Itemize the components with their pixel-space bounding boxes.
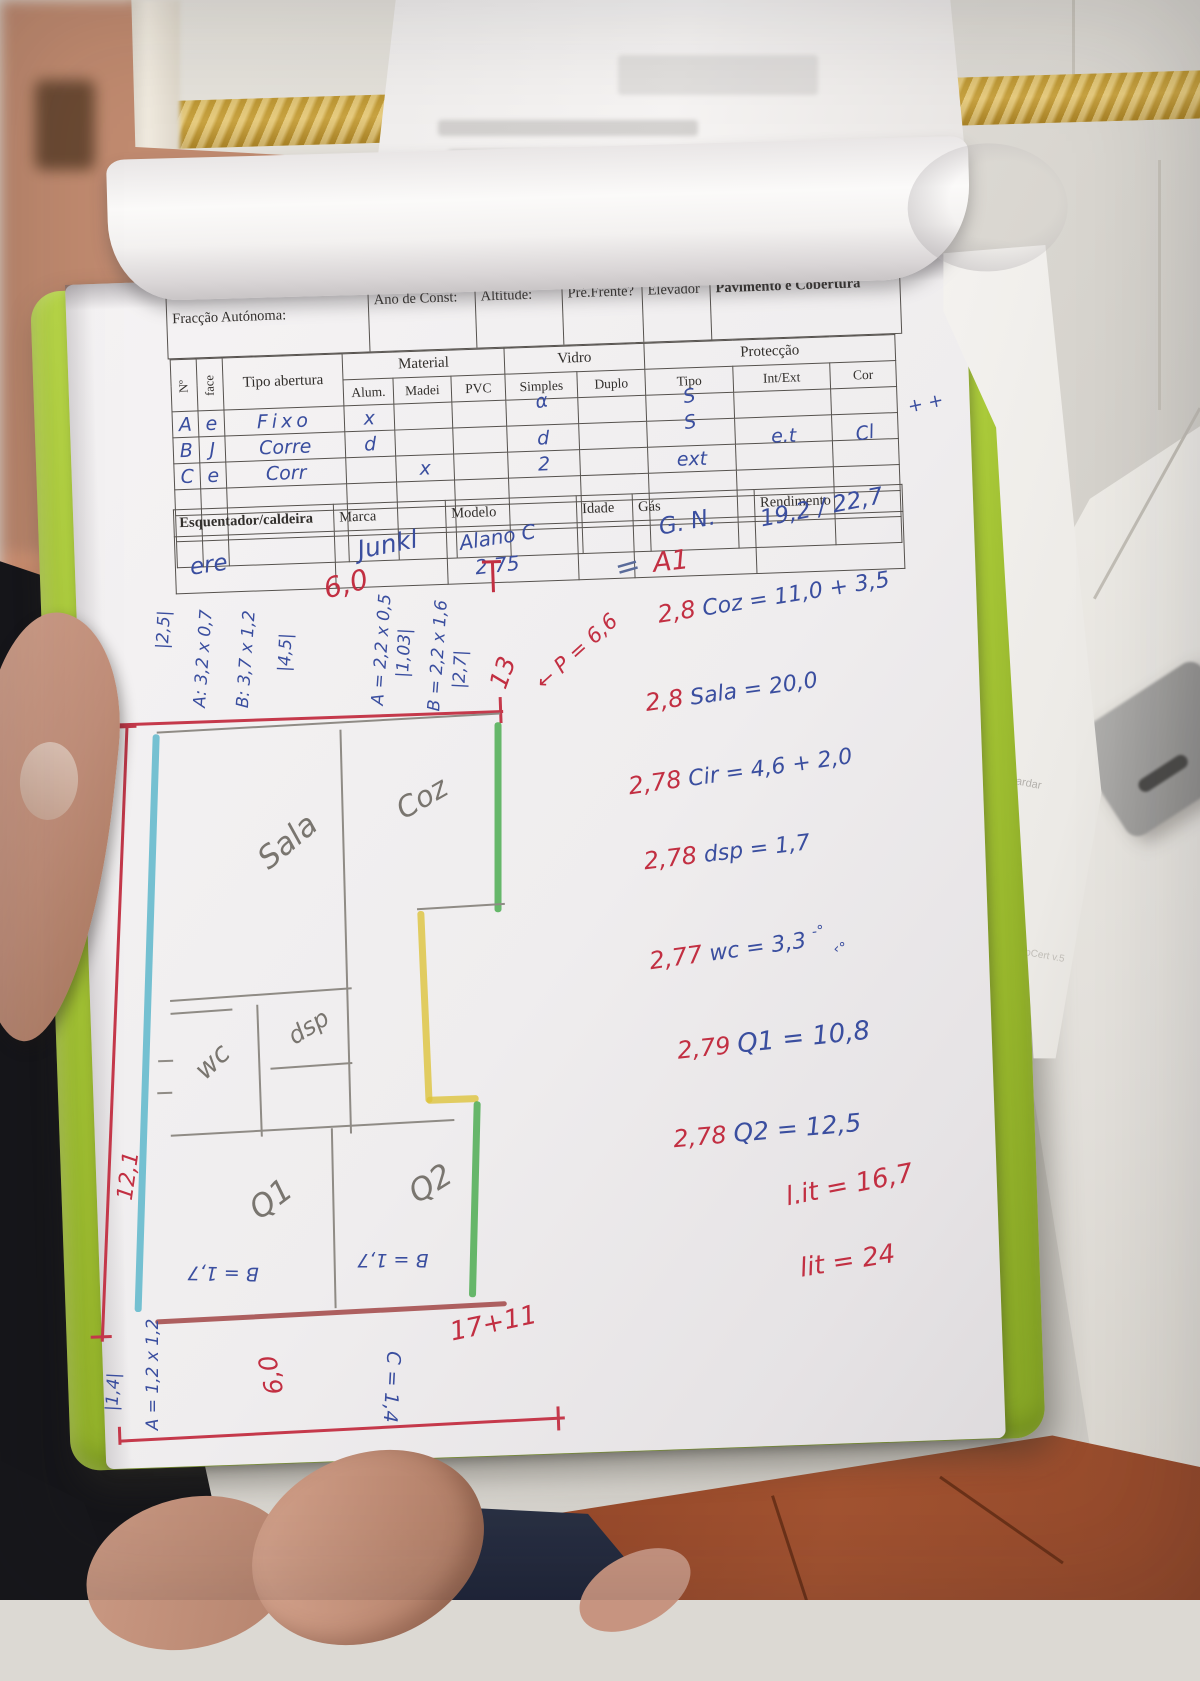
measure-25: |2,5| (153, 610, 175, 649)
col-madei: Madei (393, 376, 452, 404)
calc-coef: 2,78 (672, 1121, 728, 1154)
plan-window-tick (158, 1060, 173, 1062)
measure-p66-text: P = 6,6 (549, 609, 622, 678)
col-int-ext: Int/Ext (733, 363, 831, 392)
bottom-measure-tick-right (556, 1406, 559, 1430)
field-altitude: Altitude: (475, 283, 564, 348)
calc-line: 2,79 Q1 = 10,8 (676, 1016, 872, 1066)
heater-esq-value: ere (188, 550, 229, 581)
rolled-page (106, 136, 972, 302)
form-paper: Bacah Olesup Fracção Autónoma: Ano de Co… (65, 254, 1006, 1470)
room-label-sala: Sala (251, 806, 325, 876)
bottom-a: A = 1,2 x 1,2 (143, 1319, 163, 1431)
floor-plan: Sala Coz wc dsp Q1 Q2 (110, 707, 556, 1481)
plan-top-tick-right (499, 697, 502, 723)
margin-note: + + (906, 390, 945, 418)
room-label-dsp: dsp (283, 1004, 334, 1051)
plan-wall-yellow-h (427, 1095, 479, 1104)
calc-small-mark: -° (811, 923, 825, 941)
plan-wall-green-upper (495, 722, 502, 912)
plan-dsp-bottom (270, 1062, 352, 1070)
room-label-coz: Coz (390, 770, 453, 826)
col-idade: Idade (576, 494, 633, 523)
measure-b37: B: 3,7 x 1,2 (233, 610, 260, 709)
plan-wc-top2 (170, 1009, 232, 1015)
floor-grout (939, 1476, 1064, 1564)
room-label-q1: Q1 (243, 1172, 300, 1227)
calc-expr: Sala = 20,0 (689, 668, 820, 711)
bottom-c: C = 1,4 (379, 1351, 405, 1424)
plan-divider-sala-coz (339, 730, 352, 1134)
plan-wall-yellow-v (417, 911, 432, 1103)
plan-window-tick (157, 1092, 172, 1094)
field-pre-frente: Pré.Frente? (562, 280, 644, 345)
calc-coef: 2,8 (643, 684, 685, 717)
shelf-object (35, 80, 95, 170)
field-elevador: Elevador (642, 277, 712, 341)
plan-wc-top (170, 987, 352, 1002)
sheet-showthrough (618, 55, 818, 95)
col-num: Nº (170, 359, 198, 412)
tile-grout-line (1158, 160, 1161, 410)
room-label-wc: wc (189, 1038, 237, 1086)
bottom-b1: B = 1,7 (187, 1261, 259, 1284)
plan-divider-q1-q2 (331, 1128, 337, 1308)
bottom-b2: B = 1,7 (357, 1249, 428, 1271)
plan-wc-right (256, 1005, 263, 1137)
lit-line-2: lit = 24 (798, 1239, 898, 1284)
plan-wall-green-lower (469, 1101, 481, 1297)
measure-p66-red: ← P = 6,6 (531, 609, 622, 695)
col-face: face (196, 358, 224, 411)
field-ano: Ano de Const: (368, 286, 477, 352)
a1-label: A1 (651, 544, 690, 579)
calc-line: 2,77 wc = 3,3 -° ‹° (648, 920, 847, 975)
calc-line: 2,78 Q2 = 12,5 (672, 1108, 862, 1153)
room-label-q2: Q2 (402, 1157, 458, 1211)
col-tipo-abertura: Tipo abertura (222, 354, 344, 410)
floor-grout (771, 1495, 808, 1601)
label-fraccao: Fracção Autónoma: (172, 307, 286, 327)
lit-line-1: l.it = 16,7 (783, 1158, 915, 1212)
measure-b22: B = 2,2 x 1,6 (424, 599, 452, 712)
calc-coef: 2,78 (642, 841, 698, 875)
calc-expr: Q1 = 10,8 (736, 1016, 872, 1060)
col-marca: Marca (333, 500, 446, 531)
col-duplo: Duplo (577, 369, 646, 397)
plan-wall-step (417, 903, 505, 910)
measure-a22: A = 2,2 x 0,5 (368, 593, 396, 706)
col-pvc: PVC (451, 374, 506, 402)
measure-45: |4,5| (275, 633, 297, 672)
plan-corridor-line (171, 1119, 455, 1137)
calc-coef: 2,8 (656, 595, 698, 629)
plan-wall-blue (135, 734, 160, 1312)
calc-line: 2,8 Sala = 20,0 (643, 665, 819, 717)
calc-line: 2,78 dsp = 1,7 (642, 827, 811, 875)
measure-13-red: 13 (484, 653, 522, 693)
bottom-tick-14: |1,4| (102, 1372, 124, 1411)
calc-expr: dsp = 1,7 (702, 830, 811, 868)
calc-line: 2,78 Cir = 4,6 + 2,0 (627, 741, 854, 800)
measure-a32: A: 3,2 x 0,7 (190, 609, 217, 708)
calc-coef: 2,77 (648, 940, 705, 975)
col-alum: Alum. (343, 378, 394, 406)
calc-expr: Q2 = 12,5 (732, 1108, 862, 1148)
calc-expr: wc = 3,3 (708, 928, 808, 966)
field-fraccao: Fracção Autónoma: (166, 289, 370, 358)
sheet-showthrough (438, 120, 698, 136)
calc-expr: Coz = 11,0 + 3,5 (701, 567, 892, 621)
col-cor: Cor (830, 361, 897, 389)
calc-coef: 2,79 (676, 1031, 732, 1064)
heater-modelo-num: 2 75 (474, 551, 521, 580)
calc-coef: 2,78 (627, 765, 684, 800)
phone-slot (1136, 752, 1191, 794)
measure-103: |1,03| (393, 628, 416, 678)
calc-small-mark: ‹° (833, 940, 848, 958)
measure-27: |2,7| (449, 650, 471, 689)
calc-expr: Cir = 4,6 + 2,0 (687, 744, 854, 792)
